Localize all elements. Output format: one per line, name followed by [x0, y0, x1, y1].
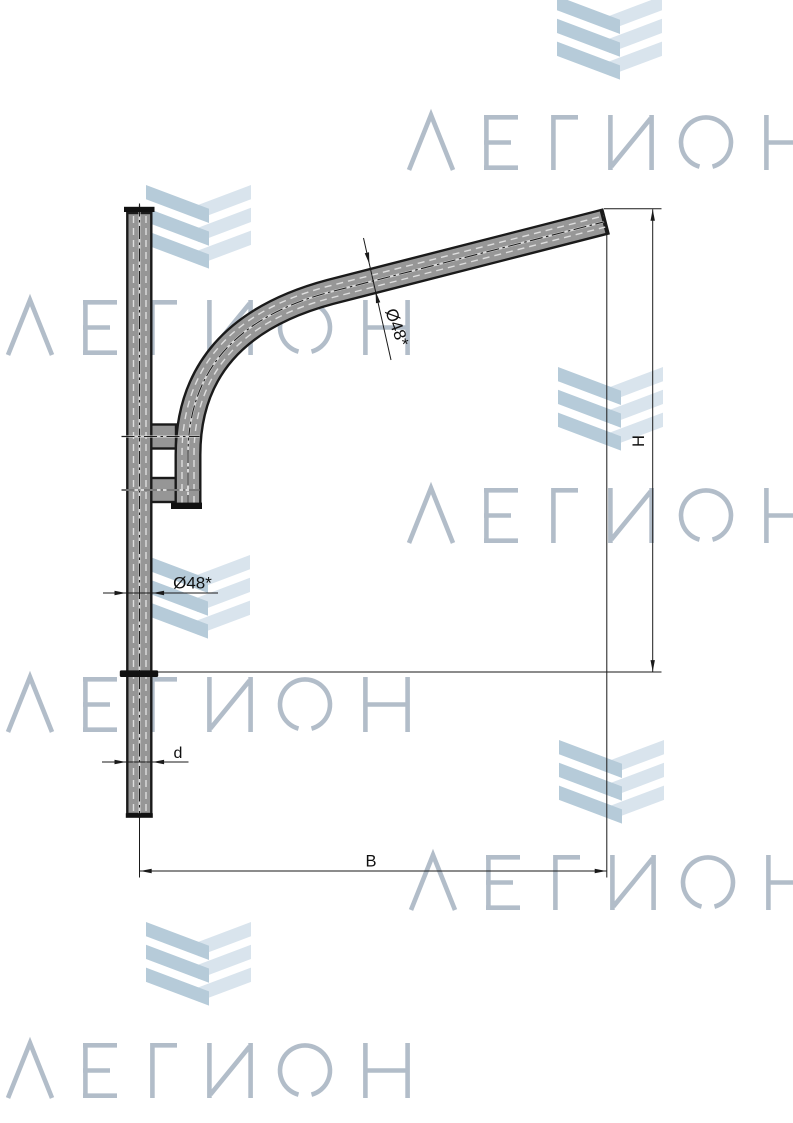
pole-diameter-label: Ø48* [173, 574, 212, 593]
watermark-text: ЛЕГИОН [8, 300, 408, 355]
watermark-layer: ЛЕГИОН ЛЕГИОН ЛЕГИОН ЛЕГИОН ЛЕГИОН ЛЕГИО… [8, 0, 793, 1098]
watermark-text: ЛЕГИОН [409, 488, 793, 543]
watermark-text: ЛЕГИОН [409, 115, 793, 170]
bracket-drawing-canvas: .chD{fill:#b6cbd9;} .chL{fill:#d9e4ed;} … [0, 0, 793, 1123]
watermark-text: ЛЕГИОН [8, 1043, 408, 1098]
legion-chevron-logo [146, 922, 251, 1006]
height-dimension-label: H [630, 435, 648, 447]
reach-dimension-label: B [365, 853, 376, 871]
pole-top-cap [124, 207, 155, 212]
dimension-arm-diameter: Ø48* [364, 238, 413, 360]
arm-inner-wall-line-top [182, 216, 604, 503]
legion-chevron-logo [559, 740, 664, 824]
pole-flange [120, 670, 158, 677]
legion-chevron-logo [145, 555, 250, 639]
mount-diameter-label: d [174, 745, 183, 762]
page: .chD{fill:#b6cbd9;} .chL{fill:#d9e4ed;} … [0, 0, 793, 1123]
arm-bottom-cap [171, 503, 202, 509]
legion-chevron-logo [557, 0, 662, 80]
watermark-text: ЛЕГИОН [8, 677, 408, 732]
arm-tube [188, 222, 603, 505]
watermark-text: ЛЕГИОН [411, 855, 793, 910]
legion-chevron-logo [146, 185, 251, 269]
